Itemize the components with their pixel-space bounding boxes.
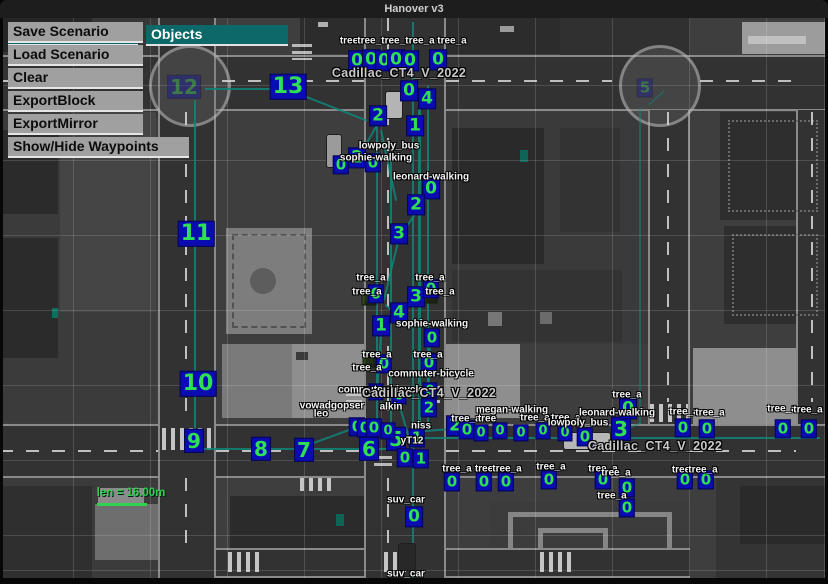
lane-dash — [0, 450, 158, 452]
waypoint-marker[interactable]: 2 — [421, 398, 437, 417]
waypoint-marker[interactable]: 1 — [406, 115, 424, 136]
waypoint-marker[interactable]: 10 — [180, 371, 217, 397]
object-label: tree_a — [405, 36, 434, 47]
title-bar[interactable]: Hanover v3 — [0, 0, 828, 18]
object-label: tree_a — [413, 350, 442, 361]
object-label: sophie-walking — [340, 153, 412, 164]
object-label: tree_a — [352, 363, 381, 374]
waypoint-marker[interactable]: 0 — [775, 419, 791, 438]
object-label: tree_a — [520, 413, 549, 424]
object-label: Cadillac_CT4_V_2022 — [332, 66, 466, 80]
waypoint-marker[interactable]: 0 — [380, 422, 395, 439]
building-outline — [728, 120, 818, 212]
object-label: lowpoly_bus — [548, 418, 609, 429]
menu-item-clear[interactable]: Clear — [8, 68, 143, 89]
window-frame-left — [0, 18, 3, 584]
menu-item-save-scenario[interactable]: Save Scenario — [8, 22, 143, 43]
waypoint-marker[interactable]: 0 — [476, 472, 492, 491]
object-label: suv_car — [387, 569, 425, 579]
object-label: tree_a — [695, 408, 724, 419]
waypoint-marker[interactable]: 0 — [424, 328, 440, 347]
object-label: tree_a — [442, 464, 471, 475]
waypoint-marker[interactable]: 0 — [473, 424, 488, 441]
object-label: alkin — [380, 402, 403, 413]
roundabout-right — [619, 45, 701, 127]
waypoint-marker[interactable]: 0 — [492, 422, 507, 439]
waypoint-marker[interactable]: 6 — [359, 437, 379, 461]
waypoint-path-segment — [639, 108, 641, 424]
menu-item-exportmirror[interactable]: ExportMirror — [8, 114, 143, 135]
object-label: leo — [314, 409, 328, 420]
vehicle-sprite[interactable] — [398, 543, 416, 571]
waypoint-marker[interactable]: 3 — [611, 417, 631, 441]
waypoint-marker[interactable]: 11 — [178, 221, 215, 247]
waypoint-marker[interactable]: 7 — [294, 438, 314, 462]
object-label: vowadgopser — [300, 401, 364, 412]
waypoint-marker[interactable]: 2 — [369, 105, 387, 126]
length-label: len = 16.00m — [97, 487, 166, 499]
object-label: tree_a — [688, 465, 717, 476]
object-label: tree — [475, 464, 493, 475]
lane-dash — [700, 80, 796, 82]
waypoint-marker[interactable]: 0 — [513, 424, 528, 441]
waypoint-marker[interactable]: 0 — [397, 448, 413, 467]
length-gauge — [97, 503, 147, 506]
building-outline — [232, 234, 306, 328]
waypoint-marker[interactable]: 0 — [675, 418, 691, 437]
waypoint-marker[interactable]: 0 — [405, 506, 423, 527]
object-label: Cadillac_CT4_V_2022 — [362, 386, 496, 400]
object-label: Cadillac_CT4_V_2022 — [588, 439, 722, 453]
object-label: tree_a — [362, 350, 391, 361]
lane-dash — [216, 450, 364, 452]
object-label: sophie-walking — [396, 319, 468, 330]
building-outline — [732, 234, 818, 316]
object-label: tree_a — [425, 287, 454, 298]
app-window: Hanover v3 — [0, 0, 828, 584]
object-label: tree_a — [597, 491, 626, 502]
stop-line — [292, 44, 312, 60]
object-label: niss — [411, 421, 431, 432]
waypoint-marker[interactable]: 0 — [444, 472, 460, 491]
object-label: tree_a — [536, 462, 565, 473]
waypoint-marker[interactable]: 0 — [801, 419, 817, 438]
lane-dash — [185, 478, 187, 552]
lane-dash — [446, 80, 612, 82]
waypoint-marker[interactable]: 8 — [251, 437, 271, 461]
waypoint-marker[interactable]: 3 — [390, 223, 408, 244]
lane-dash — [667, 112, 669, 402]
waypoint-marker[interactable]: 9 — [184, 429, 204, 453]
waypoint-marker[interactable]: 4 — [418, 88, 436, 109]
object-label: tree — [340, 36, 358, 47]
waypoint-marker[interactable]: 1 — [413, 449, 429, 468]
object-label: tree — [478, 414, 496, 425]
crosswalk — [228, 552, 262, 572]
object-label: yT12 — [401, 436, 424, 447]
menu-item-load-scenario[interactable]: Load Scenario — [8, 45, 143, 66]
object-label: tree_a — [793, 405, 822, 416]
waypoint-marker[interactable]: 5 — [637, 78, 653, 97]
file-menu-dropdown: Save ScenarioLoad ScenarioClearExportBlo… — [8, 22, 189, 160]
waypoint-marker[interactable]: 0 — [498, 472, 514, 491]
window-frame-bottom — [0, 578, 828, 584]
object-label: lowpoly_bus — [359, 141, 420, 152]
object-label: tree_a — [451, 414, 480, 425]
waypoint-marker[interactable]: 0 — [541, 470, 557, 489]
object-label: tree_a — [492, 464, 521, 475]
waypoint-marker[interactable]: 1 — [372, 315, 390, 336]
object-label: suv_car — [387, 495, 425, 506]
menu-item-exportblock[interactable]: ExportBlock — [8, 91, 143, 112]
waypoint-marker[interactable]: 0 — [699, 419, 715, 438]
object-label: tree_a — [415, 273, 444, 284]
lane-dash — [387, 478, 389, 556]
waypoint-marker[interactable]: 0 — [400, 80, 418, 101]
crosswalk — [300, 478, 336, 491]
waypoint-marker[interactable]: 2 — [407, 194, 425, 215]
object-label: leonard-walking — [393, 172, 469, 183]
lane-dash — [811, 112, 813, 402]
window-title: Hanover v3 — [384, 3, 443, 15]
object-label: tree_a — [612, 390, 641, 401]
object-label: tree_a — [352, 287, 381, 298]
crosswalk — [540, 552, 574, 572]
object-label: tree_a — [601, 468, 630, 479]
object-label: commuter-bicycle — [388, 369, 474, 380]
menu-item-show-hide-waypoints[interactable]: Show/Hide Waypoints — [8, 137, 189, 158]
object-label: tree_a — [437, 36, 466, 47]
object-label: tree_a — [356, 273, 385, 284]
waypoint-marker[interactable]: 13 — [270, 74, 307, 100]
